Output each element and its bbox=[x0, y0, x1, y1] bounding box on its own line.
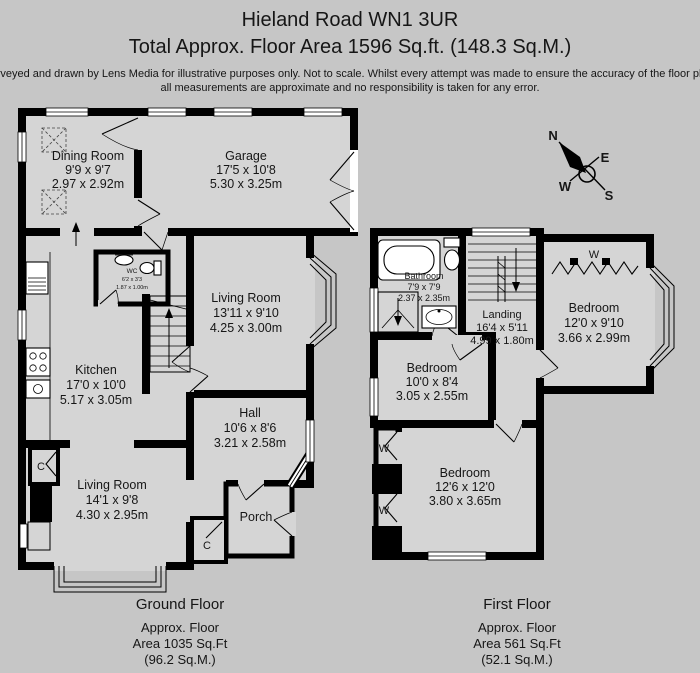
svg-text:16'4 x 5'11: 16'4 x 5'11 bbox=[476, 322, 528, 334]
compass-n: N bbox=[548, 128, 557, 143]
label-garage: Garage bbox=[225, 149, 267, 163]
label-living1: Living Room bbox=[211, 291, 280, 305]
label-landing: Landing bbox=[482, 309, 521, 321]
svg-text:9'9 x 9'7: 9'9 x 9'7 bbox=[65, 163, 111, 177]
svg-text:4.99 x 1.80m: 4.99 x 1.80m bbox=[470, 335, 534, 347]
svg-text:4.25 x 3.00m: 4.25 x 3.00m bbox=[210, 321, 282, 335]
wc-basin-icon bbox=[115, 255, 133, 265]
svg-text:3.21 x 2.58m: 3.21 x 2.58m bbox=[214, 436, 286, 450]
first-floor-title: First Floor bbox=[483, 596, 551, 613]
svg-text:Approx. Floor: Approx. Floor bbox=[478, 620, 557, 635]
label-living2: Living Room bbox=[77, 478, 146, 492]
label-wc: WC bbox=[127, 268, 138, 275]
fridge-icon bbox=[26, 262, 48, 294]
svg-text:10'6 x 8'6: 10'6 x 8'6 bbox=[224, 421, 277, 435]
page-title: Hieland Road WN1 3UR bbox=[242, 9, 459, 31]
label-wardrobe-1: W bbox=[379, 443, 390, 455]
svg-text:5.30 x 3.25m: 5.30 x 3.25m bbox=[210, 177, 282, 191]
ground-floor-title: Ground Floor bbox=[136, 596, 224, 613]
disclaimer-line2: all measurements are approximate and no … bbox=[160, 82, 539, 94]
toilet-icon bbox=[444, 238, 460, 270]
compass-e: E bbox=[601, 150, 610, 165]
label-cupboard-2: C bbox=[203, 540, 211, 552]
compass-w: W bbox=[559, 179, 572, 194]
label-bedroom1: Bedroom bbox=[569, 301, 620, 315]
svg-text:3.66 x 2.99m: 3.66 x 2.99m bbox=[558, 331, 630, 345]
svg-text:17'5 x 10'8: 17'5 x 10'8 bbox=[216, 163, 276, 177]
disclaimer-line1: Surveyed and drawn by Lens Media for ill… bbox=[0, 68, 700, 80]
svg-text:3.80 x 3.65m: 3.80 x 3.65m bbox=[429, 494, 501, 508]
compass-icon: N E W S bbox=[548, 128, 613, 203]
compass-s: S bbox=[605, 188, 614, 203]
label-bedroom2: Bedroom bbox=[407, 361, 458, 375]
page-subtitle: Total Approx. Floor Area 1596 Sq.ft. (14… bbox=[129, 36, 571, 58]
label-bathroom: Bathroom bbox=[404, 271, 443, 281]
stove-icon bbox=[26, 348, 50, 376]
svg-text:Approx. Floor: Approx. Floor bbox=[141, 620, 220, 635]
first-floor-caption: First Floor Approx. Floor Area 561 Sq.Ft… bbox=[473, 596, 561, 667]
label-dining: Dining Room bbox=[52, 149, 124, 163]
svg-text:6'2 x 3'3: 6'2 x 3'3 bbox=[122, 277, 142, 283]
svg-text:(96.2 Sq.M.): (96.2 Sq.M.) bbox=[144, 652, 216, 667]
svg-text:3.05 x 2.55m: 3.05 x 2.55m bbox=[396, 389, 468, 403]
floorplan-page: Hieland Road WN1 3UR Total Approx. Floor… bbox=[0, 0, 700, 673]
label-wardrobe-2: W bbox=[379, 505, 390, 517]
ground-floor-plan: Dining Room 9'9 x 9'7 2.97 x 2.92m Garag… bbox=[18, 108, 358, 592]
svg-text:2.37 x 2.35m: 2.37 x 2.35m bbox=[398, 293, 450, 303]
label-bedroom3: Bedroom bbox=[440, 466, 491, 480]
label-cupboard-1: C bbox=[37, 461, 45, 473]
label-porch: Porch bbox=[240, 510, 273, 524]
svg-text:4.30 x 2.95m: 4.30 x 2.95m bbox=[76, 508, 148, 522]
label-wardrobe-bedroom1: W bbox=[589, 249, 600, 261]
bathroom-basin-icon bbox=[422, 306, 456, 328]
wc-toilet-icon bbox=[140, 261, 161, 275]
kitchen-sink-icon bbox=[26, 380, 50, 398]
svg-text:Area 561 Sq.Ft: Area 561 Sq.Ft bbox=[473, 636, 561, 651]
floorplan-canvas: Hieland Road WN1 3UR Total Approx. Floor… bbox=[0, 0, 700, 673]
ground-floor-caption: Ground Floor Approx. Floor Area 1035 Sq.… bbox=[133, 596, 228, 667]
svg-text:13'11 x 9'10: 13'11 x 9'10 bbox=[213, 306, 279, 320]
svg-text:12'0 x 9'10: 12'0 x 9'10 bbox=[564, 316, 624, 330]
svg-text:14'1 x 9'8: 14'1 x 9'8 bbox=[86, 493, 139, 507]
svg-text:Area 1035 Sq.Ft: Area 1035 Sq.Ft bbox=[133, 636, 228, 651]
label-hall: Hall bbox=[239, 406, 261, 420]
first-floor-plan: Bathroom 7'9 x 7'9 2.37 x 2.35m Landing … bbox=[370, 228, 674, 560]
svg-text:(52.1 Sq.M.): (52.1 Sq.M.) bbox=[481, 652, 553, 667]
svg-text:5.17 x 3.05m: 5.17 x 3.05m bbox=[60, 393, 132, 407]
svg-text:1.87 x 1.00m: 1.87 x 1.00m bbox=[116, 285, 148, 291]
svg-text:12'6 x 12'0: 12'6 x 12'0 bbox=[435, 480, 495, 494]
svg-text:10'0 x 8'4: 10'0 x 8'4 bbox=[406, 375, 459, 389]
label-kitchen: Kitchen bbox=[75, 363, 117, 377]
svg-text:2.97 x 2.92m: 2.97 x 2.92m bbox=[52, 177, 124, 191]
svg-text:7'9 x 7'9: 7'9 x 7'9 bbox=[408, 282, 441, 292]
svg-text:17'0 x 10'0: 17'0 x 10'0 bbox=[66, 378, 126, 392]
